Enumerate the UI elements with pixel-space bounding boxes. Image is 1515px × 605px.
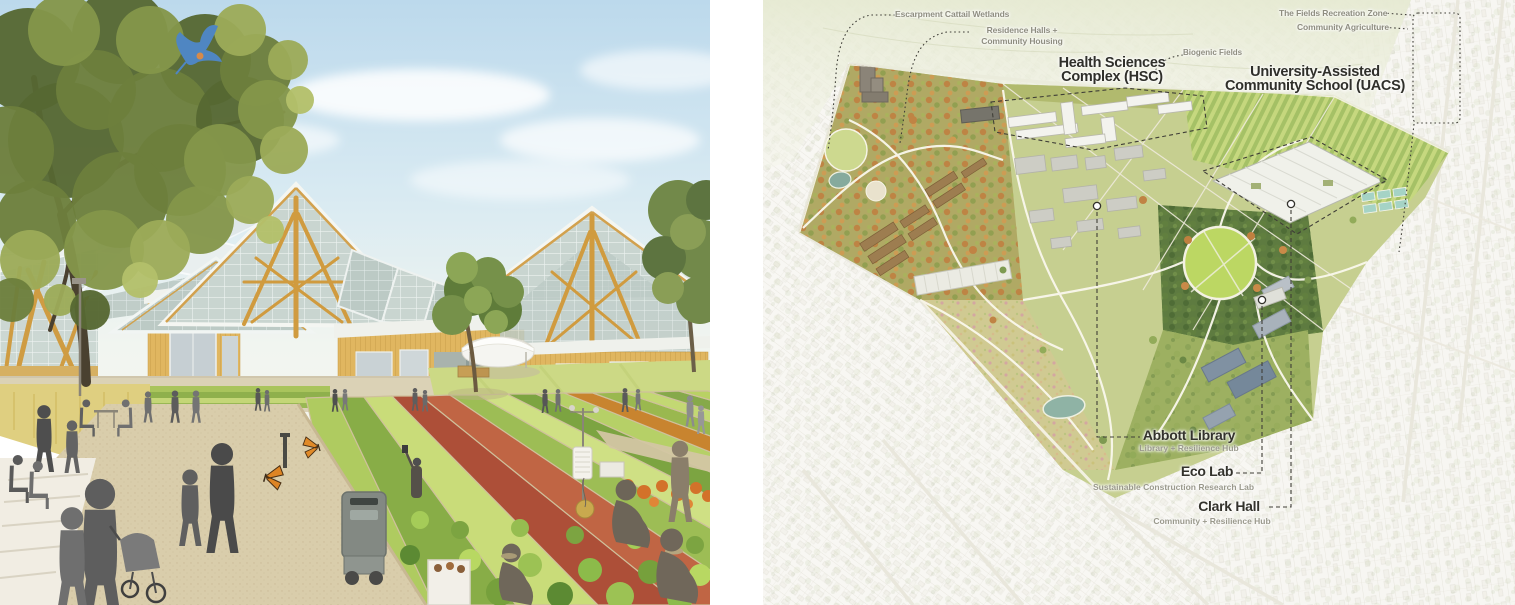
rendering-scene: [0, 0, 710, 605]
panel-divider: [710, 0, 763, 605]
farm-robot: [342, 492, 386, 585]
label-line: Community Housing: [967, 36, 1077, 47]
label-escarpment-cattail-wetlands: Escarpment Cattail Wetlands: [895, 9, 1009, 19]
label-abbott-library: Abbott Library Library + Resilience Hub: [1123, 428, 1255, 453]
label-clark-hall: Clark Hall: [1175, 499, 1283, 514]
image-pair: Escarpment Cattail Wetlands Residence Ha…: [0, 0, 1515, 605]
label-biogenic-fields: Biogenic Fields: [1183, 48, 1242, 57]
label-residence-halls: Residence Halls + Community Housing: [967, 25, 1077, 47]
label-university-assisted-community-school: University-Assisted Community School (UA…: [1225, 66, 1405, 93]
pin-abbott: [1093, 202, 1100, 209]
produce-crate: [428, 560, 470, 605]
label-line: Community School (UACS): [1225, 80, 1405, 94]
label-eco-lab-subtitle: Sustainable Construction Research Lab: [1093, 482, 1239, 492]
label-subtitle: Library + Resilience Hub: [1123, 443, 1255, 453]
label-line: Residence Halls +: [967, 25, 1077, 36]
pin-clark: [1287, 200, 1294, 207]
rendering-community-farm-campus: [0, 0, 710, 605]
label-title: Abbott Library: [1123, 428, 1255, 443]
campus-masterplan-map: Escarpment Cattail Wetlands Residence Ha…: [763, 0, 1515, 605]
label-community-agriculture: Community Agriculture: [1297, 22, 1381, 32]
label-clark-hall-subtitle: Community + Resilience Hub: [1146, 516, 1278, 526]
label-fields-recreation-zone: The Fields Recreation Zone: [1279, 8, 1381, 18]
pin-ecolab: [1258, 296, 1265, 303]
label-line: Complex (HSC): [1049, 71, 1175, 85]
label-eco-lab: Eco Lab: [1161, 464, 1253, 479]
label-health-sciences-complex: Health Sciences Complex (HSC): [1049, 57, 1175, 84]
